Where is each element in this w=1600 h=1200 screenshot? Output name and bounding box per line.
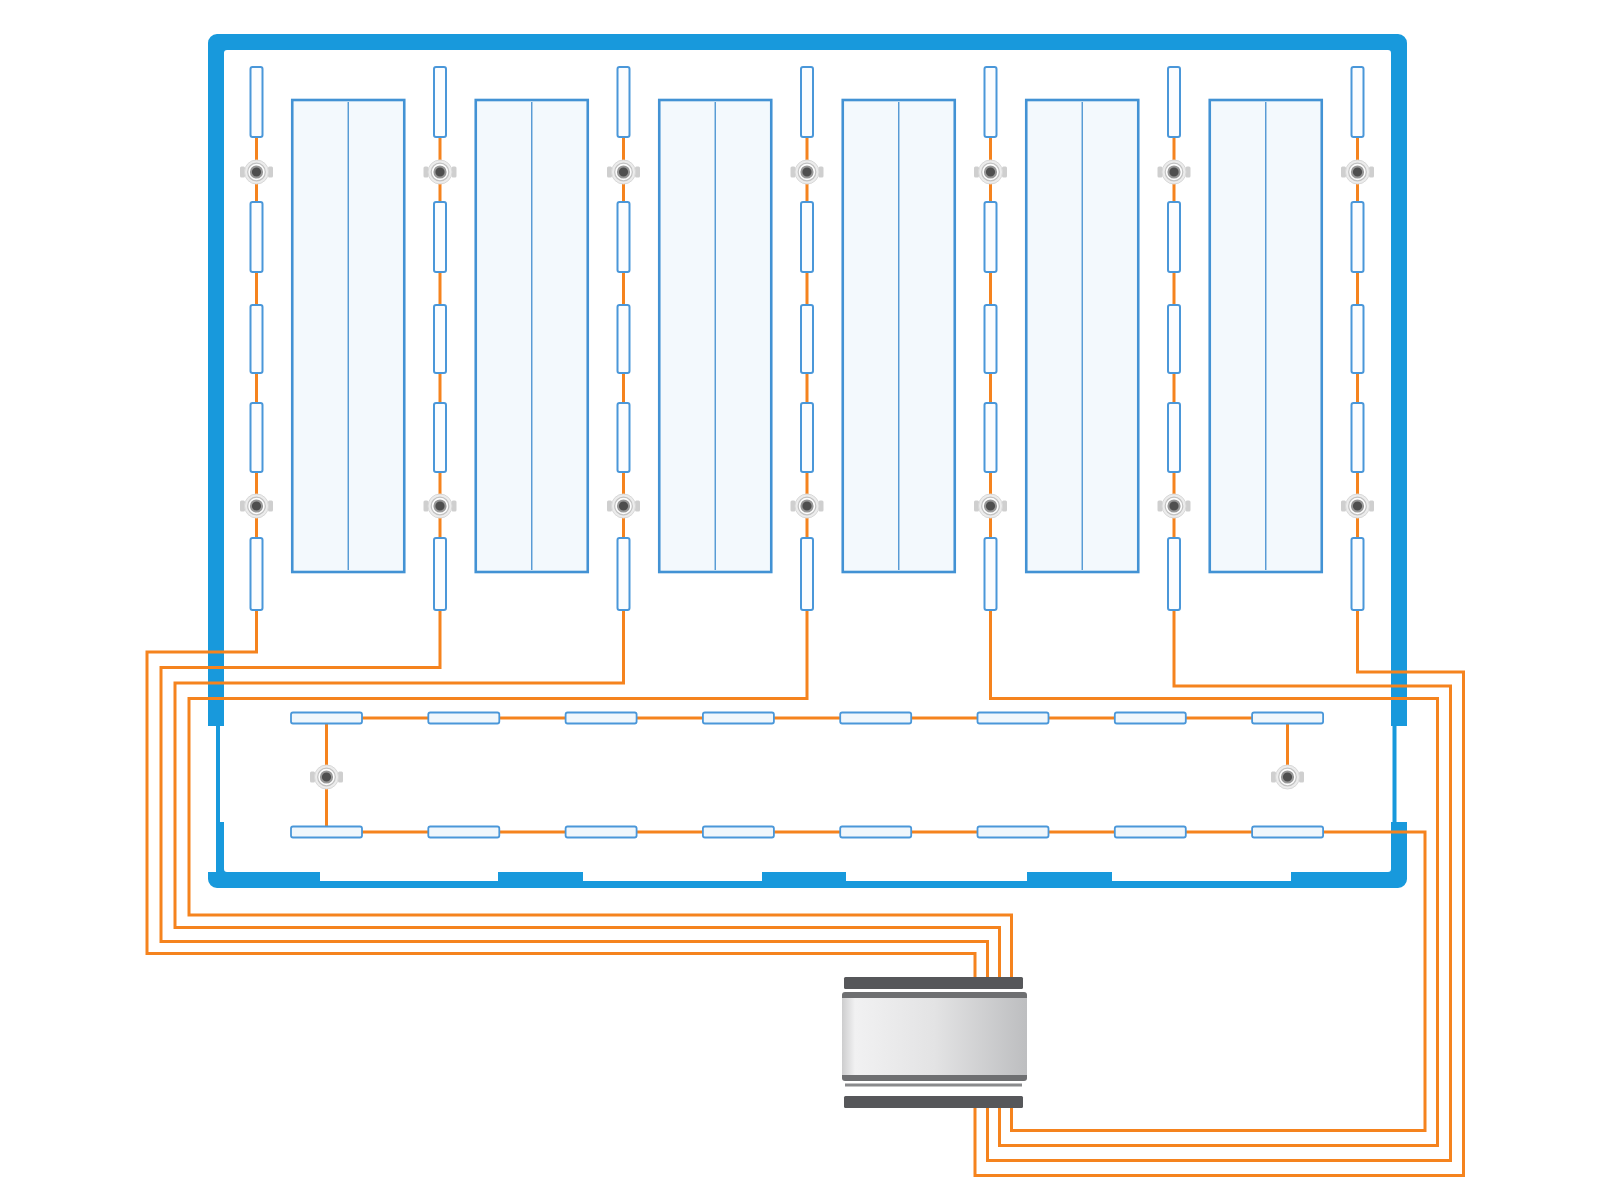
sensor-lens-dot [1352, 166, 1363, 177]
wall-door-opening [583, 871, 762, 881]
luminaire [1252, 827, 1323, 838]
sensor-lens-dot [251, 500, 262, 511]
luminaire [434, 538, 446, 610]
sensor-lens-dot [1282, 771, 1293, 782]
luminaire [251, 202, 263, 272]
sensor-lens-dot [251, 166, 262, 177]
luminaire [1252, 713, 1323, 724]
luminaire [1168, 67, 1180, 137]
sensor-lens-dot [1168, 166, 1179, 177]
sensor-lens-dot [801, 500, 812, 511]
wall-door-window-line [1393, 726, 1397, 822]
sensor-lens-dot [1168, 500, 1179, 511]
skylight-panel [292, 100, 404, 572]
luminaire [985, 67, 997, 137]
luminaire [801, 305, 813, 373]
luminaire [291, 713, 362, 724]
luminaire [618, 305, 630, 373]
luminaire [1168, 403, 1180, 472]
wall-door-opening [1389, 726, 1409, 822]
luminaire [985, 403, 997, 472]
sensor-lens-dot [618, 500, 629, 511]
luminaire [434, 67, 446, 137]
luminaire [1168, 202, 1180, 272]
luminaire [1352, 403, 1364, 472]
luminaire [618, 202, 630, 272]
luminaire [1115, 827, 1186, 838]
luminaire [618, 538, 630, 610]
luminaire [251, 403, 263, 472]
sensor-lens-dot [801, 166, 812, 177]
luminaire [1168, 538, 1180, 610]
luminaire [291, 827, 362, 838]
sensor-lens-dot [1352, 500, 1363, 511]
sensor-lens-dot [321, 771, 332, 782]
luminaire [1168, 305, 1180, 373]
wall-door-opening [1112, 871, 1291, 881]
luminaire [434, 202, 446, 272]
skylight-panel [843, 100, 955, 572]
luminaire [1352, 202, 1364, 272]
controller-bottom-bar [844, 1096, 1023, 1108]
floor-plan-canvas [0, 0, 1600, 1200]
sensor-lens-dot [985, 500, 996, 511]
skylight-panel [659, 100, 771, 572]
luminaire [801, 67, 813, 137]
wall-door-opening [206, 822, 216, 872]
luminaire [840, 713, 911, 724]
luminaire [840, 827, 911, 838]
luminaire [428, 713, 499, 724]
wall-door-opening [320, 871, 498, 881]
luminaire [434, 305, 446, 373]
luminaire [985, 202, 997, 272]
sensor-lens-dot [985, 166, 996, 177]
luminaire [434, 403, 446, 472]
luminaire [1352, 67, 1364, 137]
luminaire [566, 713, 637, 724]
luminaire [1115, 713, 1186, 724]
skylight-panel [476, 100, 588, 572]
luminaire [618, 403, 630, 472]
wall-door-opening [206, 726, 225, 822]
luminaire [251, 305, 263, 373]
luminaire [566, 827, 637, 838]
wall-door-opening [846, 871, 1027, 881]
luminaire [978, 713, 1049, 724]
luminaire [1352, 538, 1364, 610]
luminaire [703, 713, 774, 724]
luminaire [618, 67, 630, 137]
controller-top-bar [844, 977, 1023, 989]
luminaire [801, 202, 813, 272]
skylight-panel [1210, 100, 1322, 572]
luminaire [985, 305, 997, 373]
luminaire [978, 827, 1049, 838]
controller-separator-line [845, 1084, 1022, 1087]
luminaire [703, 827, 774, 838]
sensor-lens-dot [618, 166, 629, 177]
luminaire [801, 538, 813, 610]
luminaire [1352, 305, 1364, 373]
lighting-plan-diagram [0, 0, 1600, 1200]
luminaire [985, 538, 997, 610]
luminaire [251, 538, 263, 610]
sensor-lens-dot [434, 166, 445, 177]
skylight-panel [1026, 100, 1138, 572]
sensor-lens-dot [434, 500, 445, 511]
wall-door-window-line [216, 726, 220, 822]
luminaire [251, 67, 263, 137]
luminaire [801, 403, 813, 472]
luminaire [428, 827, 499, 838]
controller-body [842, 998, 1027, 1075]
